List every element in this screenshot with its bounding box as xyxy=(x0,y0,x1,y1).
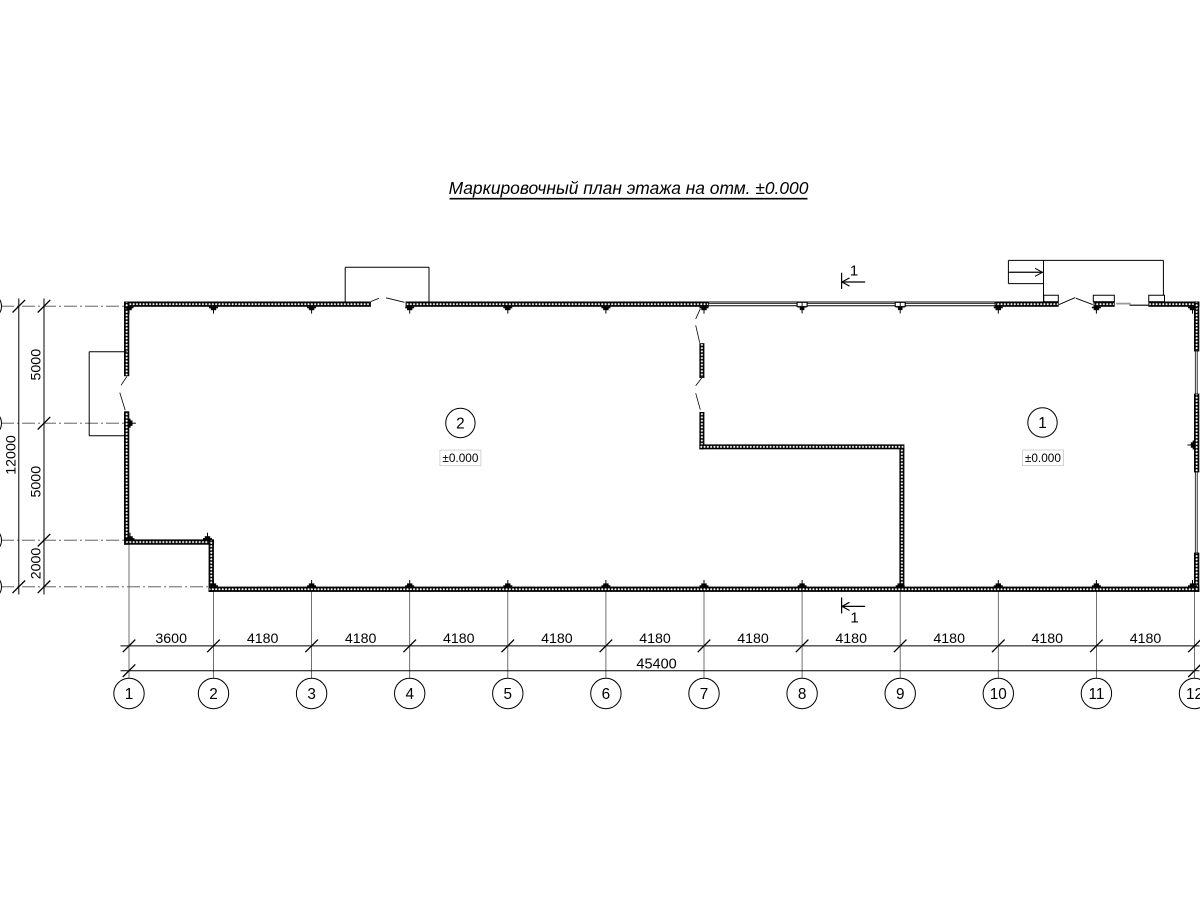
svg-text:4180: 4180 xyxy=(247,631,279,647)
svg-text:5000: 5000 xyxy=(29,349,45,381)
svg-text:10: 10 xyxy=(990,686,1007,703)
svg-text:4: 4 xyxy=(405,686,414,703)
svg-text:5000: 5000 xyxy=(29,466,45,498)
svg-text:4180: 4180 xyxy=(345,631,377,647)
svg-text:1: 1 xyxy=(1038,415,1047,432)
svg-text:1: 1 xyxy=(850,263,858,280)
svg-text:1: 1 xyxy=(125,686,134,703)
svg-text:4180: 4180 xyxy=(737,631,769,647)
svg-text:3600: 3600 xyxy=(155,631,187,647)
svg-text:4180: 4180 xyxy=(933,631,965,647)
svg-text:2: 2 xyxy=(456,416,465,433)
svg-text:4180: 4180 xyxy=(443,631,475,647)
svg-text:4180: 4180 xyxy=(639,631,671,647)
svg-text:±0.000: ±0.000 xyxy=(1025,451,1061,465)
svg-text:Маркировочный план этажа на от: Маркировочный план этажа на отм. ±0.000 xyxy=(449,178,809,198)
svg-text:8: 8 xyxy=(798,686,807,703)
svg-text:45400: 45400 xyxy=(636,656,676,672)
svg-text:6: 6 xyxy=(602,686,611,703)
svg-text:12: 12 xyxy=(1186,686,1200,703)
svg-text:4180: 4180 xyxy=(1032,631,1064,647)
svg-text:1: 1 xyxy=(850,610,858,627)
svg-text:4180: 4180 xyxy=(1130,631,1162,647)
svg-text:12000: 12000 xyxy=(3,435,19,475)
svg-text:2: 2 xyxy=(209,686,218,703)
svg-text:11: 11 xyxy=(1088,686,1104,703)
svg-text:7: 7 xyxy=(700,686,709,703)
svg-text:2000: 2000 xyxy=(29,548,45,580)
svg-text:4180: 4180 xyxy=(835,631,867,647)
svg-text:9: 9 xyxy=(896,686,905,703)
svg-text:±0.000: ±0.000 xyxy=(442,451,478,465)
svg-text:4180: 4180 xyxy=(541,631,573,647)
svg-text:5: 5 xyxy=(504,686,513,703)
svg-text:3: 3 xyxy=(307,686,316,703)
